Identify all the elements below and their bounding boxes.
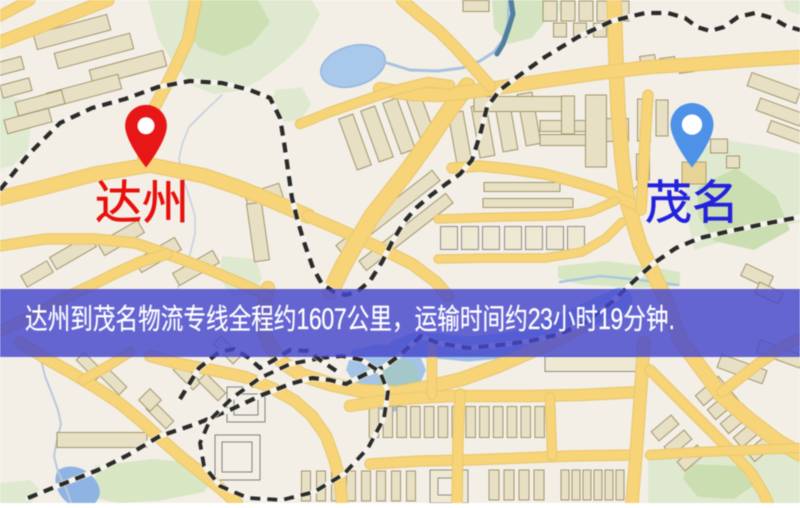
svg-text:23: 23 xyxy=(528,302,553,335)
svg-text:.: . xyxy=(668,302,674,335)
svg-text:1607: 1607 xyxy=(296,302,346,335)
svg-text:19: 19 xyxy=(598,302,623,335)
